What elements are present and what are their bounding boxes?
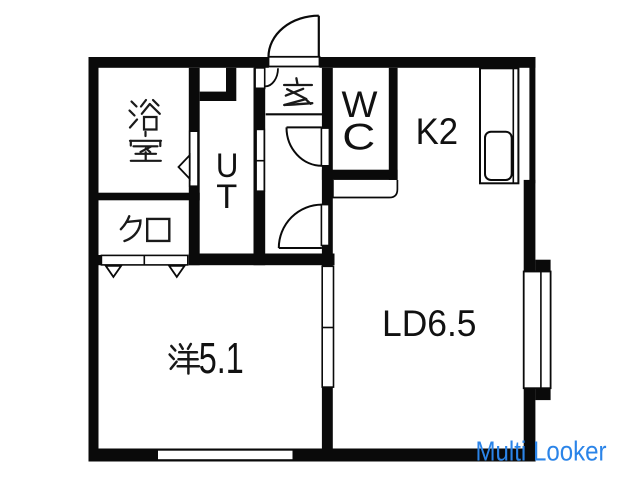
svg-text:K2: K2: [416, 111, 459, 152]
svg-text:C: C: [342, 117, 375, 158]
svg-text:T: T: [216, 178, 237, 216]
svg-text:LD6.5: LD6.5: [382, 303, 477, 344]
svg-text:Multi Looker: Multi Looker: [476, 436, 607, 467]
svg-text:5.1: 5.1: [199, 335, 244, 383]
